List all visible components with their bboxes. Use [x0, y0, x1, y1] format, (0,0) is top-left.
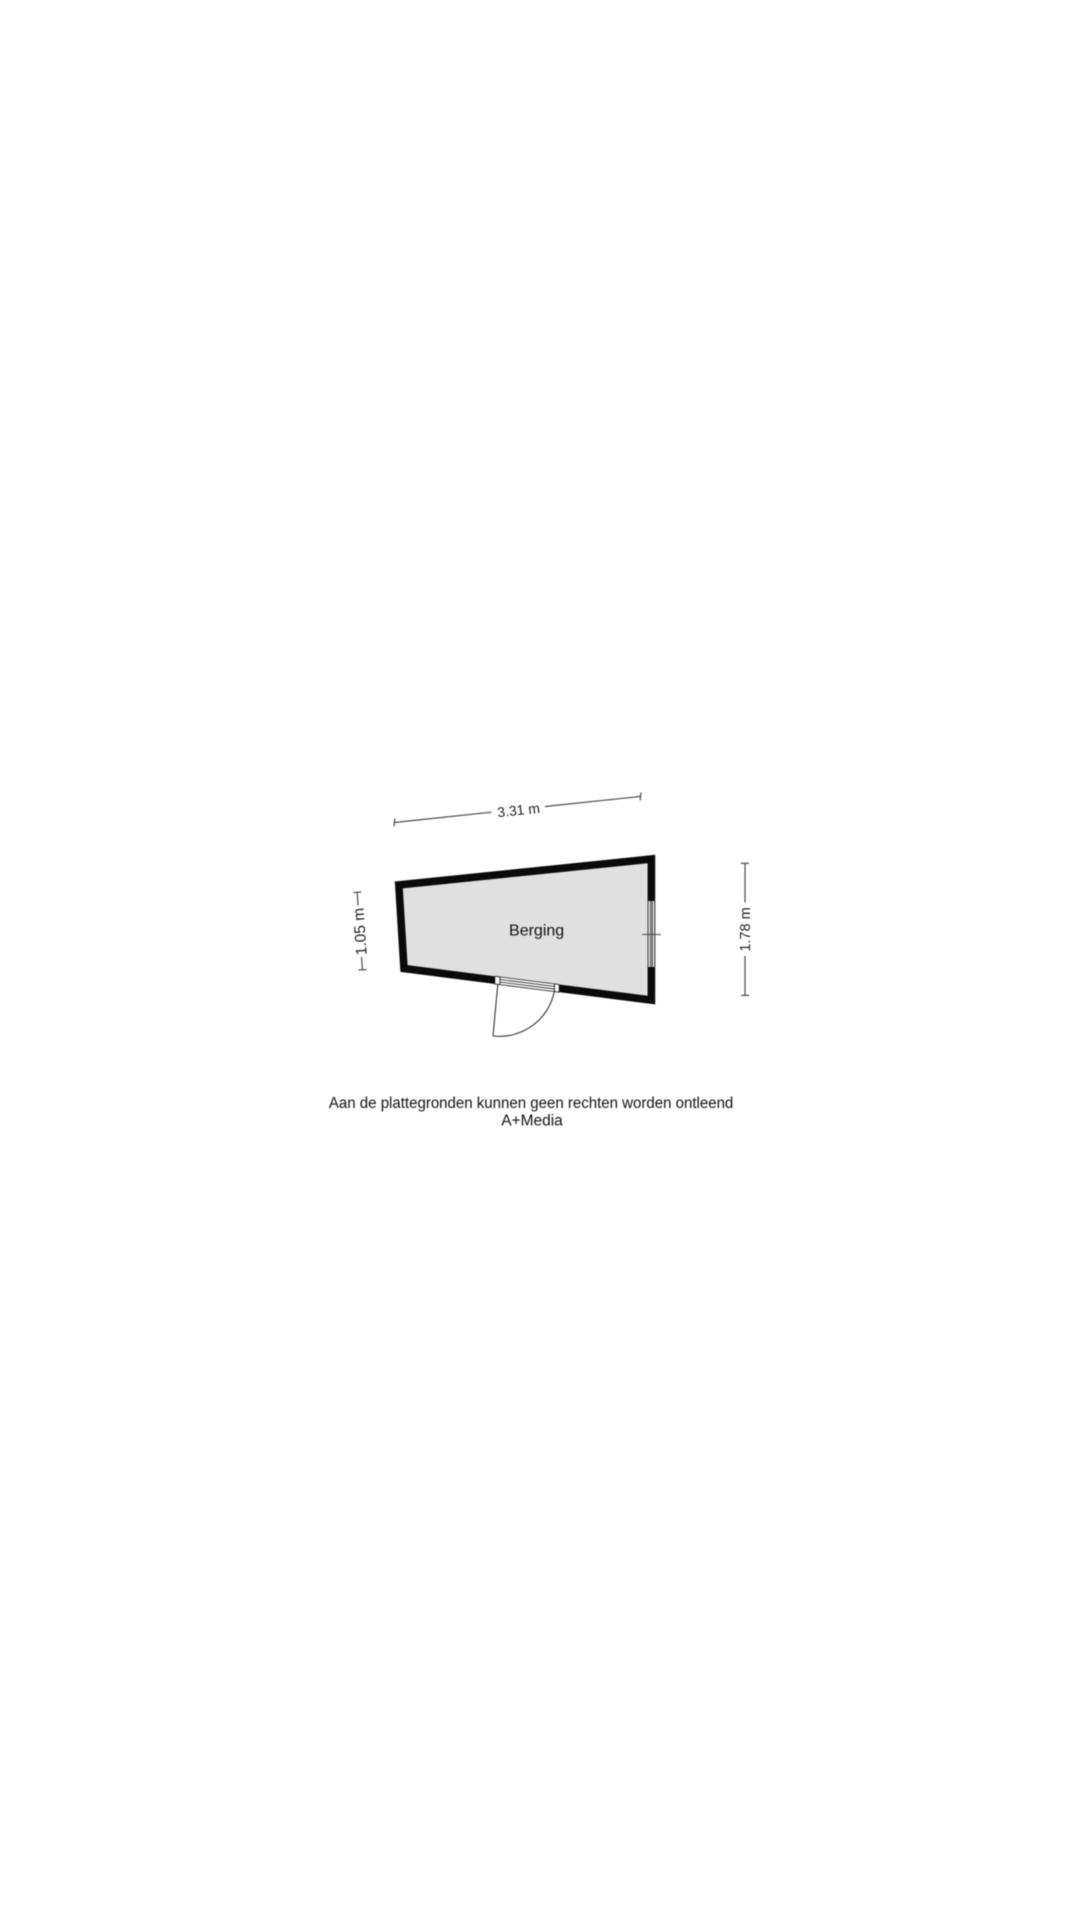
svg-text:1.78 m: 1.78 m: [738, 907, 754, 951]
svg-text:Aan de plattegronden kunnen ge: Aan de plattegronden kunnen geen rechten…: [329, 1095, 733, 1112]
svg-text:1.05 m: 1.05 m: [350, 907, 370, 955]
svg-text:A+Media: A+Media: [501, 1113, 563, 1130]
svg-text:Berging: Berging: [509, 922, 564, 939]
svg-text:3.31 m: 3.31 m: [496, 800, 540, 820]
